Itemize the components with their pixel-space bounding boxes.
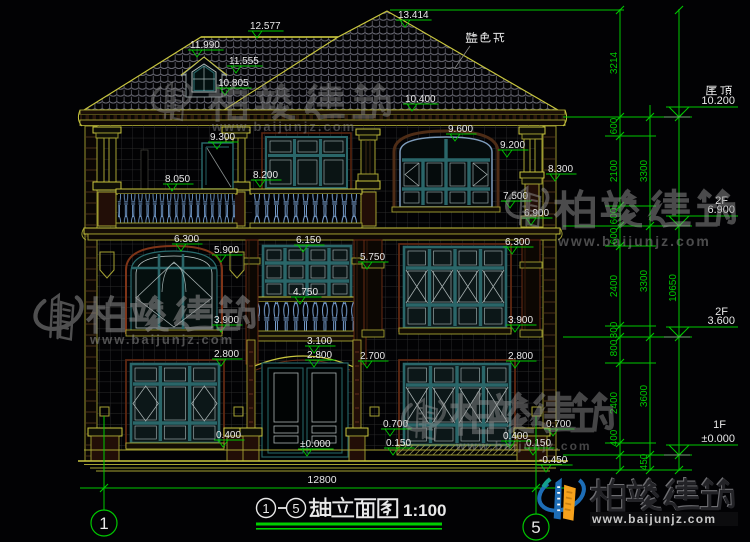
svg-text:8.300: 8.300 [548, 164, 573, 175]
svg-text:1F: 1F [713, 419, 726, 431]
svg-text:10.200: 10.200 [701, 95, 735, 107]
svg-text:3.900: 3.900 [508, 315, 533, 326]
svg-text:600: 600 [609, 117, 620, 134]
svg-text:www.baijunjz.com: www.baijunjz.com [89, 332, 234, 347]
svg-text:www.baijunjz.com: www.baijunjz.com [557, 233, 711, 249]
svg-text:9.200: 9.200 [500, 140, 525, 151]
svg-text:2100: 2100 [609, 159, 620, 182]
svg-text:12.577: 12.577 [250, 21, 281, 32]
svg-text:5.750: 5.750 [360, 252, 385, 263]
svg-text:2.700: 2.700 [360, 351, 385, 362]
svg-text:-0.450: -0.450 [539, 455, 568, 466]
svg-text:6.300: 6.300 [505, 237, 530, 248]
svg-text:www.baijunjz.com: www.baijunjz.com [591, 512, 716, 526]
svg-text:12800: 12800 [307, 474, 336, 486]
svg-text:4.750: 4.750 [293, 287, 318, 298]
svg-text:9.600: 9.600 [448, 124, 473, 135]
svg-text:2.800: 2.800 [307, 350, 332, 361]
svg-text:0.400: 0.400 [216, 430, 241, 441]
svg-text:450: 450 [639, 453, 650, 470]
svg-text:1:100: 1:100 [403, 501, 446, 520]
svg-text:2.800: 2.800 [508, 351, 533, 362]
svg-text:0.150: 0.150 [386, 438, 411, 449]
svg-text:5.900: 5.900 [214, 245, 239, 256]
svg-text:10650: 10650 [668, 274, 679, 302]
svg-text:www.baijunjz.com: www.baijunjz.com [455, 439, 592, 453]
svg-text:6.300: 6.300 [174, 234, 199, 245]
svg-text:800: 800 [609, 339, 620, 356]
svg-text:www.baijunjz.com: www.baijunjz.com [211, 119, 356, 134]
svg-text:1: 1 [262, 501, 269, 516]
svg-text:3300: 3300 [639, 269, 650, 292]
svg-text:5: 5 [292, 501, 299, 516]
svg-text:3600: 3600 [639, 384, 650, 407]
svg-text:1: 1 [99, 514, 108, 533]
svg-text:8.050: 8.050 [165, 174, 190, 185]
svg-text:3300: 3300 [639, 159, 650, 182]
svg-text:±0.000: ±0.000 [300, 439, 331, 450]
svg-text:11.990: 11.990 [190, 40, 220, 51]
svg-text:400: 400 [609, 429, 620, 446]
svg-text:3214: 3214 [609, 51, 620, 74]
svg-text:11.555: 11.555 [229, 56, 259, 67]
svg-text:6.150: 6.150 [296, 235, 321, 246]
svg-text:±0.000: ±0.000 [701, 433, 735, 445]
svg-text:5: 5 [531, 518, 540, 537]
svg-text:3.100: 3.100 [307, 336, 332, 347]
svg-text:2.800: 2.800 [214, 349, 239, 360]
svg-text:13.414: 13.414 [398, 10, 429, 21]
svg-text:2400: 2400 [609, 274, 620, 297]
svg-text:10.400: 10.400 [405, 94, 436, 105]
svg-text:300: 300 [609, 321, 620, 338]
svg-text:2F: 2F [715, 306, 728, 318]
svg-text:8.200: 8.200 [253, 170, 278, 181]
